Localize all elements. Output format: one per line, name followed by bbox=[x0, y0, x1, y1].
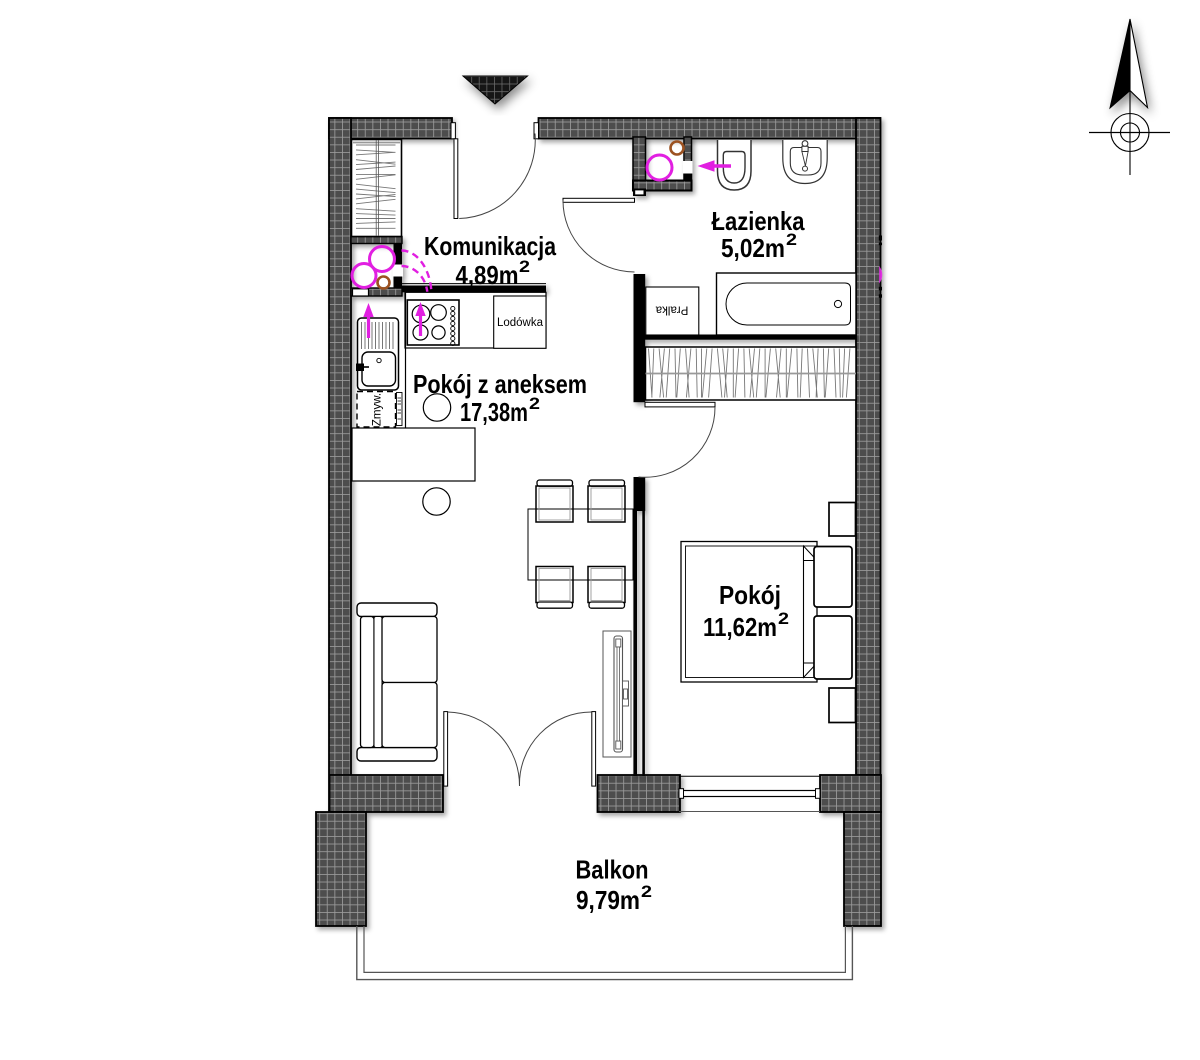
svg-text:2: 2 bbox=[519, 257, 530, 276]
svg-text:Balkon: Balkon bbox=[576, 855, 649, 885]
svg-text:5,02m: 5,02m bbox=[721, 233, 785, 263]
svg-text:2: 2 bbox=[641, 882, 652, 901]
svg-text:Pokój z aneksem: Pokój z aneksem bbox=[413, 369, 587, 399]
svg-text:4,89m: 4,89m bbox=[456, 260, 519, 290]
svg-text:2: 2 bbox=[778, 609, 789, 628]
svg-text:Zmyw.: Zmyw. bbox=[372, 393, 384, 426]
svg-text:Pralka: Pralka bbox=[655, 304, 688, 316]
svg-text:Komunikacja: Komunikacja bbox=[424, 231, 556, 261]
svg-text:17,38m: 17,38m bbox=[460, 397, 528, 427]
svg-text:11,62m: 11,62m bbox=[703, 612, 777, 642]
svg-text:Pokój: Pokój bbox=[719, 580, 781, 610]
svg-text:2: 2 bbox=[786, 230, 797, 249]
svg-text:9,79m: 9,79m bbox=[576, 885, 640, 915]
svg-text:2: 2 bbox=[529, 394, 540, 413]
svg-text:Lodówka: Lodówka bbox=[497, 317, 544, 329]
